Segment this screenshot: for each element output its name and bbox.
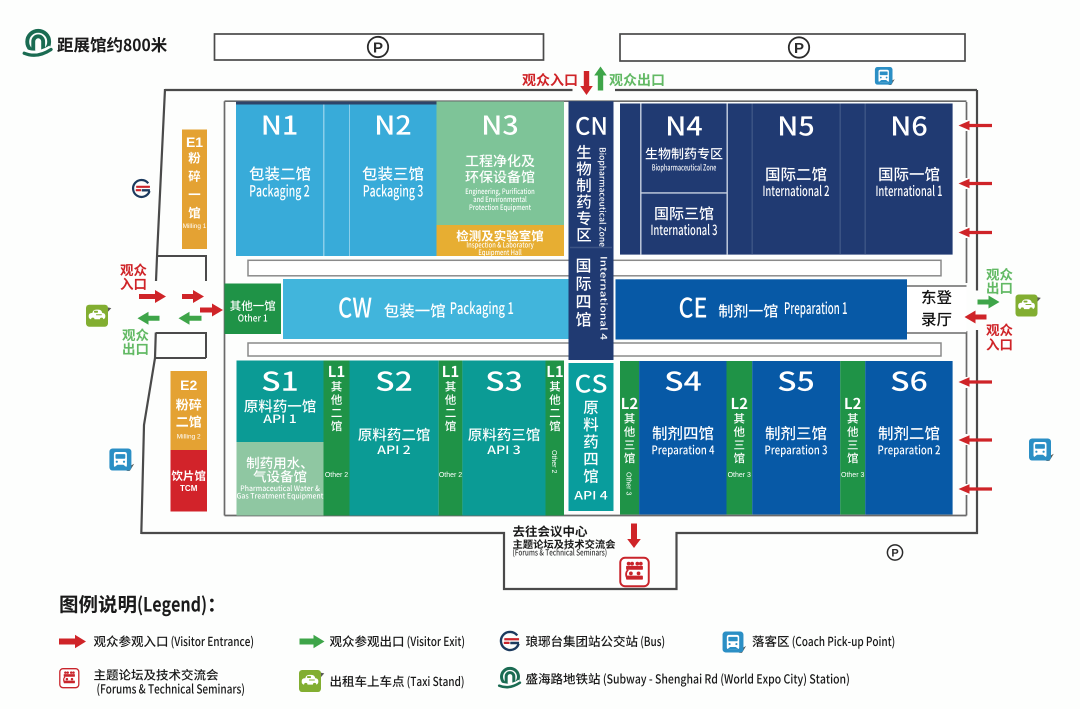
svg-text:Other 3: Other 3 xyxy=(625,472,632,495)
svg-text:Other 3: Other 3 xyxy=(841,472,864,479)
svg-text:P: P xyxy=(891,548,898,560)
svg-text:Milling 2: Milling 2 xyxy=(177,434,201,441)
svg-text:Other 2: Other 2 xyxy=(439,472,462,479)
svg-text:Other 2: Other 2 xyxy=(325,472,348,479)
svg-text:Other 3: Other 3 xyxy=(728,472,751,479)
svg-text:TCM: TCM xyxy=(180,484,198,493)
svg-text:E1: E1 xyxy=(186,134,203,150)
svg-text:Milling 1: Milling 1 xyxy=(183,223,207,230)
svg-text:P: P xyxy=(794,40,804,57)
svg-text:E2: E2 xyxy=(180,377,197,393)
svg-text:Other 2: Other 2 xyxy=(550,450,557,473)
svg-text:P: P xyxy=(373,39,383,56)
